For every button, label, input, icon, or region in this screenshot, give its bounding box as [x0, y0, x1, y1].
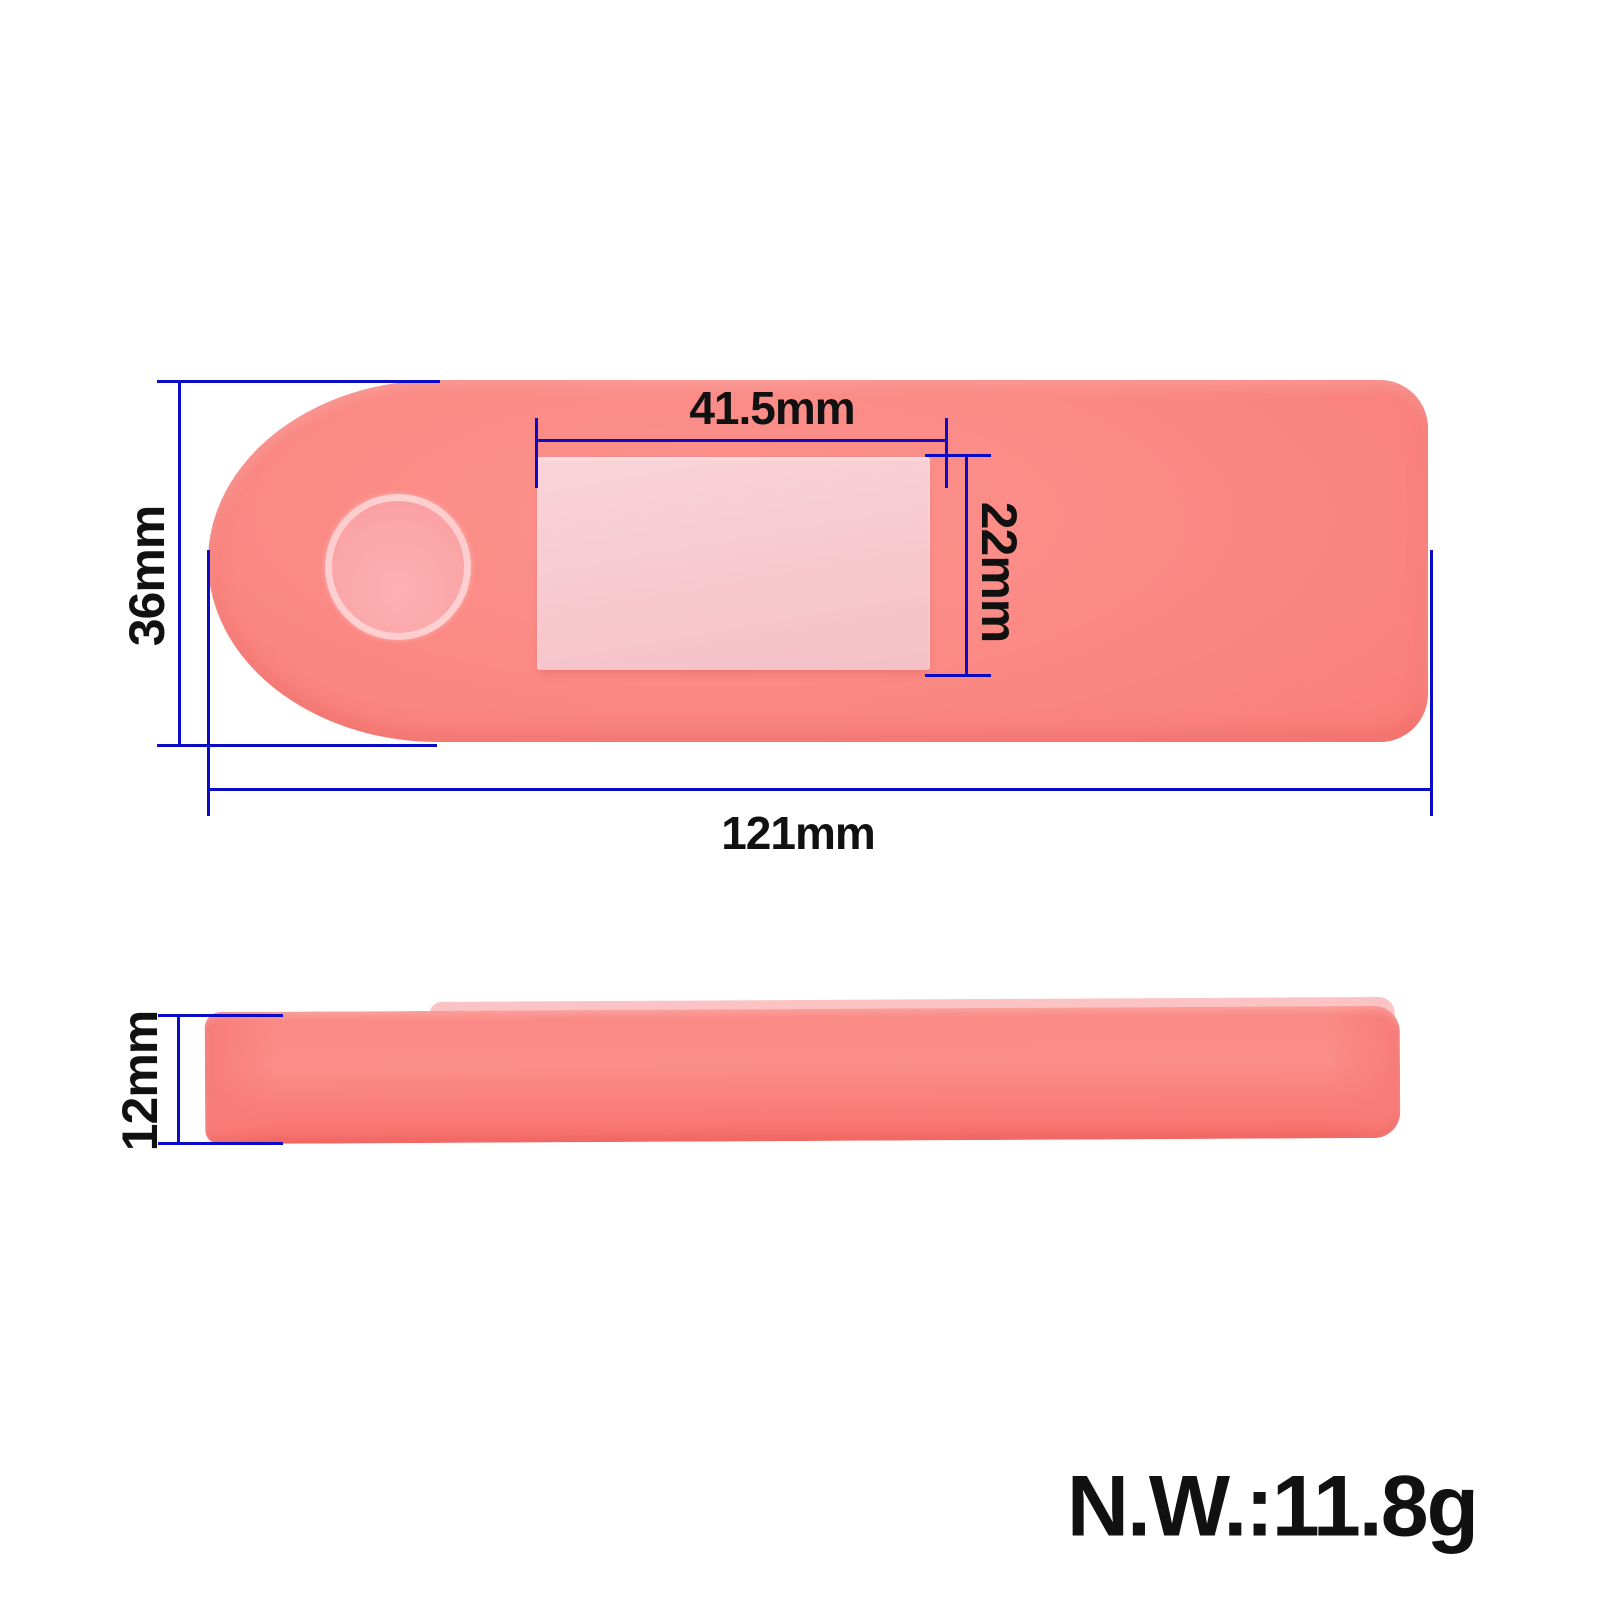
dim-line-22mm [965, 455, 968, 676]
tick-41-5mm-right [945, 418, 948, 488]
tick-41-5mm-left [535, 418, 538, 488]
tick-22mm-top [925, 454, 991, 457]
tick-12mm-bottom [158, 1142, 283, 1145]
dim-line-41-5mm [536, 439, 948, 442]
ext-line-36mm-top [157, 380, 440, 383]
cover-side-view [205, 1006, 1401, 1144]
tick-22mm-bottom [925, 674, 991, 677]
ext-line-121mm-left [207, 550, 210, 816]
dim-label-22mm: 22mm [974, 502, 1024, 643]
dim-label-12mm: 12mm [115, 1011, 165, 1152]
dim-line-12mm [177, 1015, 180, 1145]
screen-window [537, 457, 930, 670]
dim-label-36mm: 36mm [122, 506, 172, 647]
dim-label-121mm: 121mm [721, 810, 875, 856]
ext-line-121mm-right [1430, 550, 1433, 816]
tick-12mm-top [158, 1014, 283, 1017]
power-button [325, 494, 471, 640]
cover-top-view [208, 380, 1428, 742]
dim-label-41-5mm: 41.5mm [689, 385, 854, 431]
product-dimension-diagram: 36mm 41.5mm 22mm 121mm 12mm N.W.:11.8g [0, 0, 1600, 1600]
ext-line-36mm-bottom [157, 744, 437, 747]
cover-body-side [205, 1006, 1401, 1144]
dim-line-121mm [207, 788, 1433, 791]
dim-line-36mm [178, 380, 181, 747]
net-weight-label: N.W.:11.8g [1067, 1458, 1477, 1557]
